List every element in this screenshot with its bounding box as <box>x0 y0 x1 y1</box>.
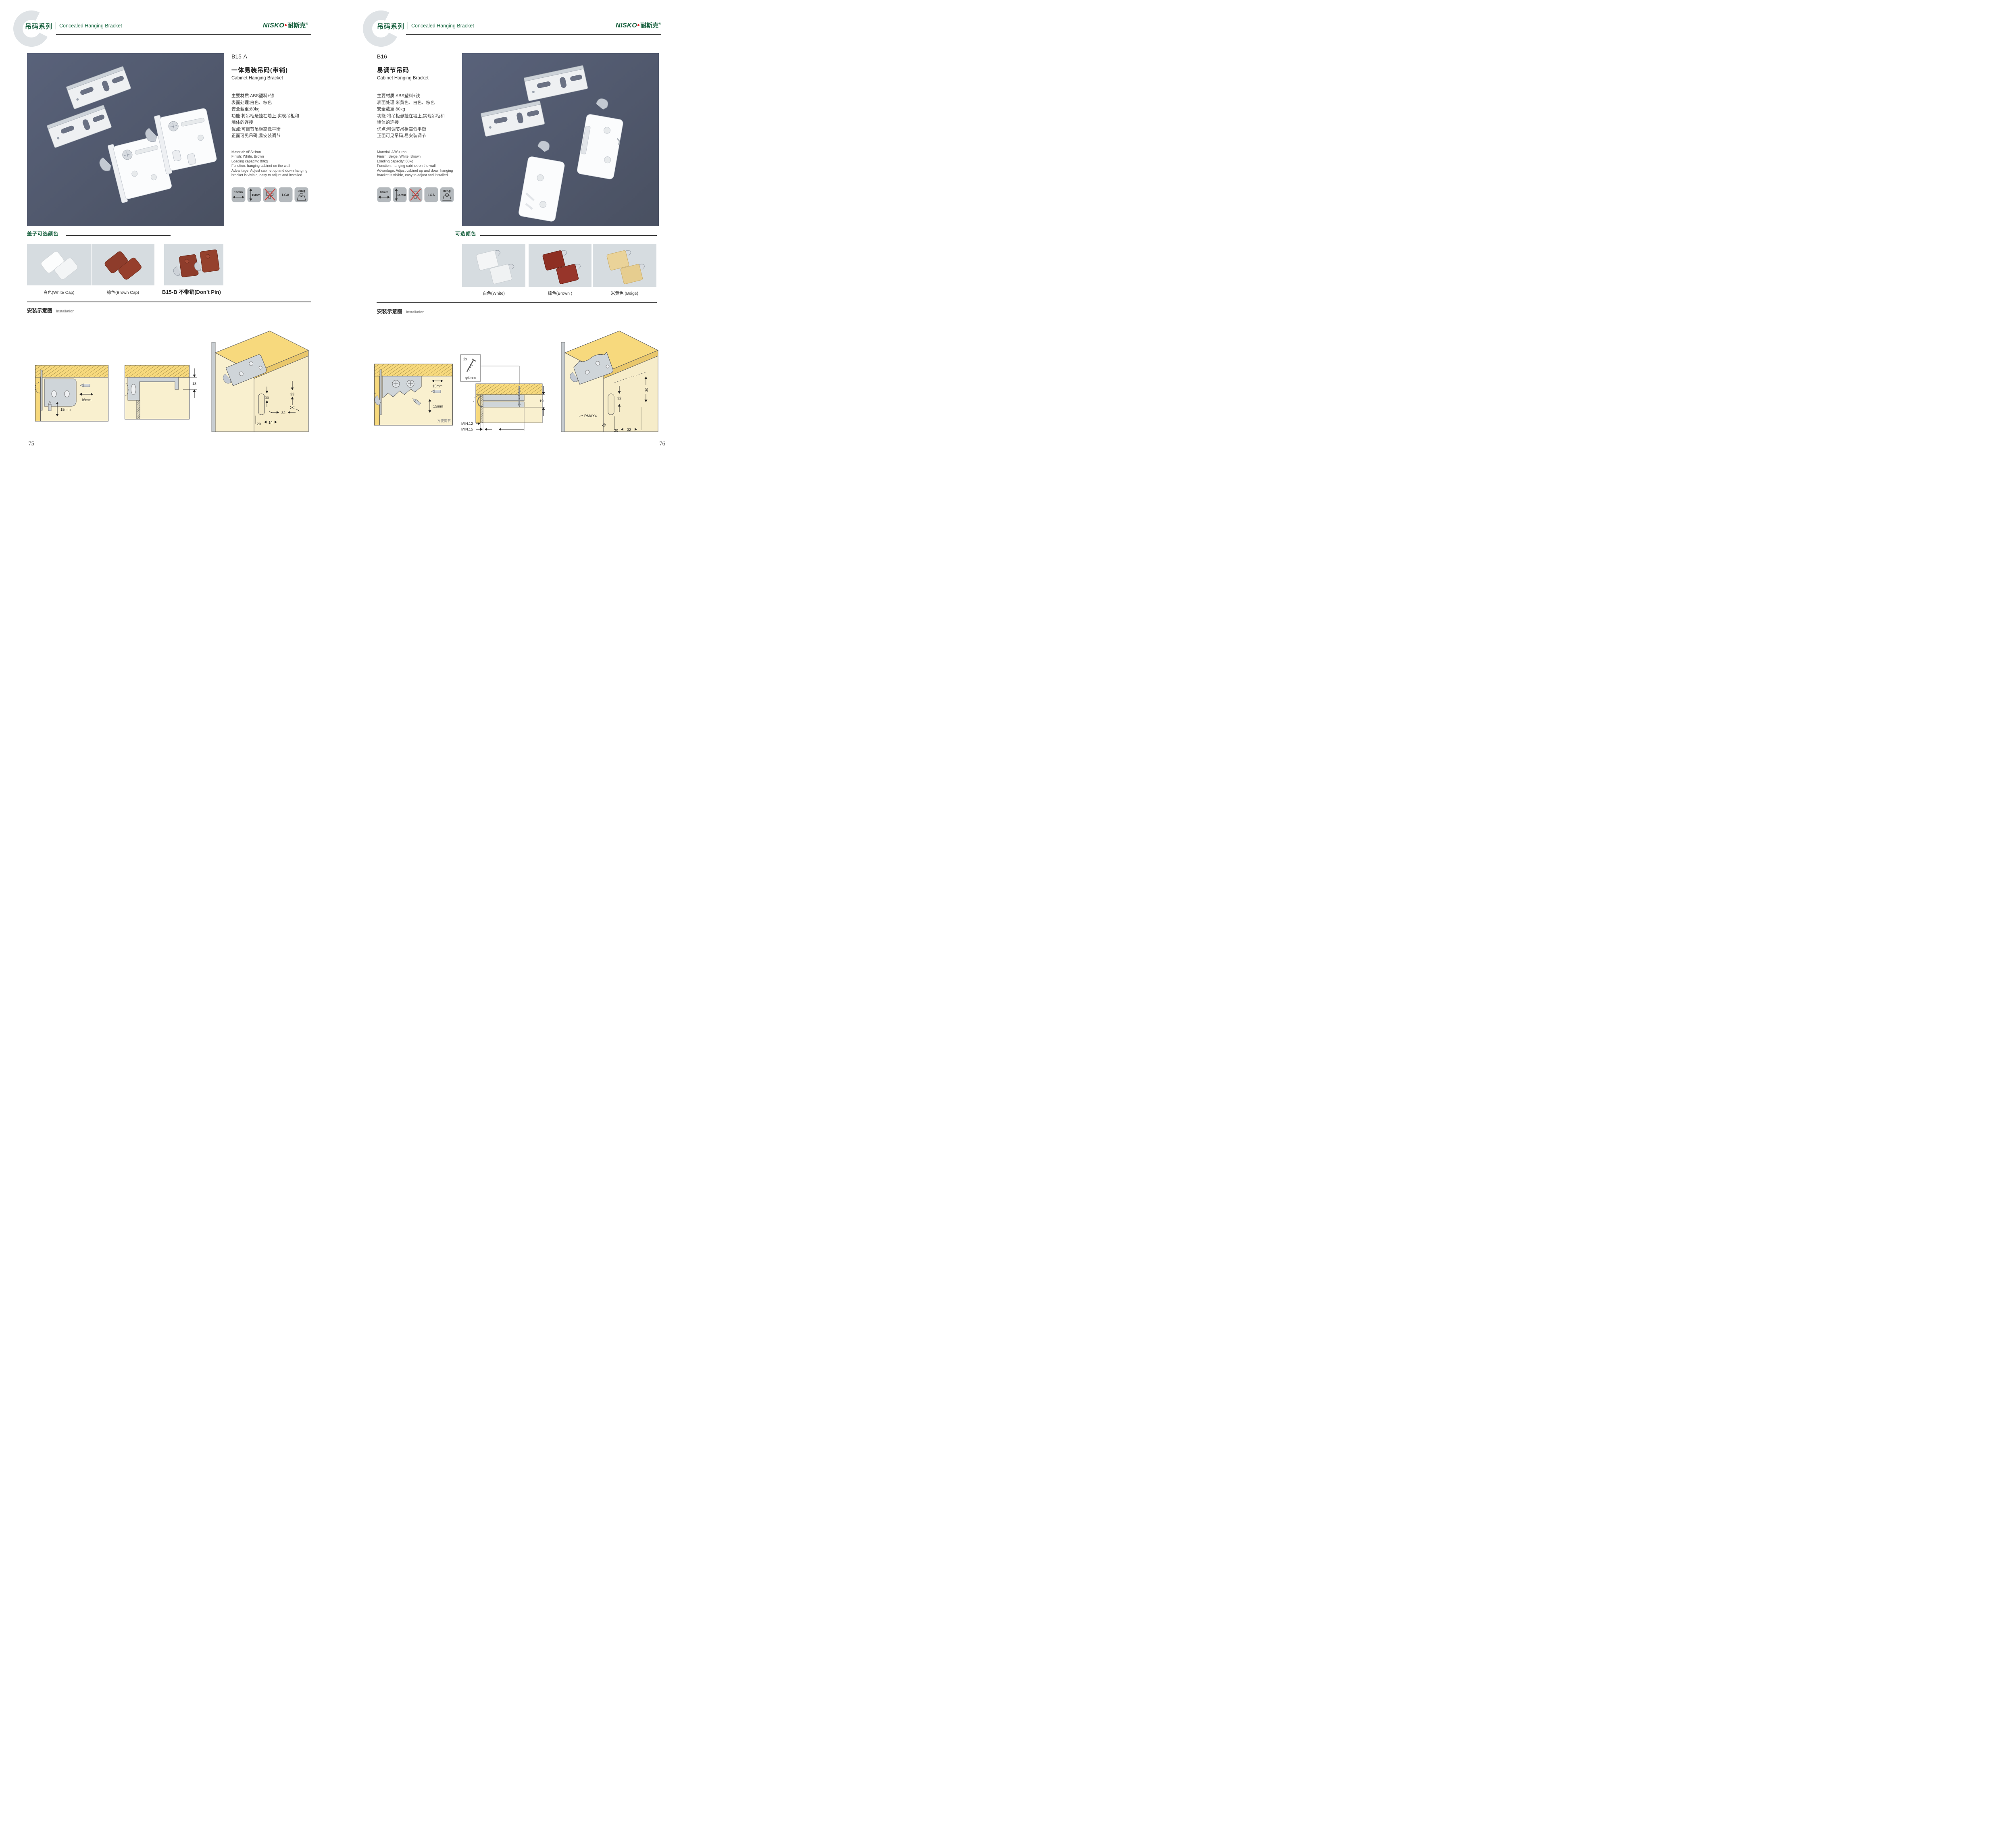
lga-certificate-icon: LGA <box>424 187 438 202</box>
swatch-caption: 白色(White) <box>462 290 525 296</box>
dim-label: 33 <box>290 392 294 396</box>
installation-diagram-2: 2x φ4mm 19 <box>460 354 546 432</box>
section-rule <box>27 302 311 302</box>
icon-label: LGA <box>282 193 289 197</box>
spec-line: Function: hanging cabinet on the wall <box>377 164 474 168</box>
color-swatch-brown-cap <box>92 244 154 285</box>
load-capacity-icon: 80Kg <box>440 187 454 202</box>
dim-label: 16mm <box>81 398 91 402</box>
dim-label: 20 <box>614 428 618 433</box>
dim-label: 19 <box>539 399 544 403</box>
color-options-heading: 盖子可选颜色 <box>27 230 58 237</box>
product-model: B15-A <box>231 53 328 60</box>
spec-line: Function: hanging cabinet on the wall <box>231 164 328 168</box>
dim-label: 32 <box>627 428 631 432</box>
dim-label: MIN.12 <box>461 422 473 426</box>
icon-label: 15mm <box>397 193 406 197</box>
icon-label: LGA <box>428 193 435 197</box>
brand-logo-latin: NISKO <box>263 22 284 29</box>
swatch-caption: 白色(White Cap) <box>27 289 91 295</box>
section-rule <box>377 302 657 303</box>
series-title-en: Concealed Hanging Bracket <box>59 23 122 29</box>
product-title-cn: 一体易装吊码(带销) <box>231 66 328 74</box>
spec-line: Finish: White, Brown <box>231 154 328 159</box>
page-number: 76 <box>659 441 665 447</box>
brand-logo-reg: ® <box>658 22 661 26</box>
installation-heading-en: Installation <box>406 310 424 314</box>
lga-certificate-icon: LGA <box>279 187 293 202</box>
product-title-cn: 易调节吊码 <box>377 66 474 74</box>
specs-cn: 主要材质:ABS塑料+铁 表面处理:白色、棕色 安全载重:80kg 功能:将吊柜… <box>231 93 328 139</box>
icon-label: 10mm <box>380 190 389 194</box>
series-title-en: Concealed Hanging Bracket <box>411 23 474 29</box>
spec-line: Advantage: Adjust cabinet up and down ha… <box>377 168 474 173</box>
catalog-spread: 吊码系列 Concealed Hanging Bracket NISKO耐斯克® <box>0 0 676 462</box>
color-swatch-b15b <box>164 244 223 285</box>
load-capacity-icon: 80Kg <box>294 187 308 202</box>
dim-label: RMAX4 <box>584 414 597 418</box>
spec-line: 主要材质:ABS塑料+铁 <box>377 93 474 100</box>
installation-heading-en: Installation <box>56 309 74 314</box>
width-arrow-icon: 16mm <box>231 187 246 202</box>
swatch-caption: 米黄色 (Beige) <box>593 290 656 296</box>
spec-line: 安全载重:80kg <box>377 106 474 113</box>
spec-line: 正面可见吊码,易安装调节 <box>231 133 328 139</box>
spec-line: Material: ABS+iron <box>377 150 474 155</box>
installation-diagram-1: 16mm 15mm <box>35 363 108 422</box>
specs-cn: 主要材质:ABS塑料+铁 表面处理:米黄色、白色、棕色 安全载重:80kg 功能… <box>377 93 474 139</box>
spec-line: 安全载重:80kg <box>231 106 328 113</box>
page-right: 吊码系列 Concealed Hanging Bracket NISKO耐斯克®… <box>338 0 676 462</box>
spec-line: 墙体的连接 <box>377 119 474 126</box>
icon-label: 15mm <box>252 193 260 197</box>
brand-logo-dot-icon <box>637 24 639 26</box>
dim-label: MIN.15 <box>461 427 473 431</box>
page-left: 吊码系列 Concealed Hanging Bracket NISKO耐斯克® <box>0 0 338 462</box>
dim-label: 20 <box>257 422 261 426</box>
screw-qty-label: 2x <box>463 357 467 361</box>
feature-icon-strip: 10mm 15mm LGA 80Kg <box>377 187 454 202</box>
spec-line: 墙体的连接 <box>231 119 328 126</box>
product-model: B16 <box>377 53 474 60</box>
product-info: B16 易调节吊码 Cabinet Hanging Bracket 主要材质:A… <box>377 53 474 178</box>
header-divider <box>408 22 408 29</box>
specs-en: Material: ABS+iron Finish: Beige, White,… <box>377 150 474 178</box>
screw-diameter-label: φ4mm <box>465 376 476 380</box>
feature-icon-strip: 16mm 15mm LGA 80Kg <box>231 187 308 202</box>
header: 吊码系列 Concealed Hanging Bracket <box>25 21 122 31</box>
width-arrow-icon: 10mm <box>377 187 391 202</box>
heading-line <box>480 235 657 236</box>
installation-heading: 安装示意图 Installation <box>27 306 74 314</box>
brand-logo: NISKO耐斯克® <box>616 21 661 29</box>
brand-logo-cn: 耐斯克 <box>640 22 658 29</box>
no-drill-icon <box>408 187 423 202</box>
header-rule <box>406 34 661 35</box>
dim-label: 15mm <box>60 408 71 412</box>
brand-logo-dot-icon <box>285 24 287 26</box>
spec-line: 优点:可调节吊柜高低平衡 <box>231 126 328 133</box>
dim-label: 14 <box>269 420 273 424</box>
header: 吊码系列 Concealed Hanging Bracket <box>377 21 474 31</box>
product-info: B15-A 一体易装吊码(带销) Cabinet Hanging Bracket… <box>231 53 328 178</box>
dim-label: 18 <box>192 382 196 386</box>
color-swatch-beige <box>593 244 656 287</box>
specs-en: Material: ABS+iron Finish: White, Brown … <box>231 150 328 178</box>
spec-line: bracket is visible, easy to adjust and i… <box>377 173 474 178</box>
dim-label: 15mm <box>432 384 442 388</box>
color-swatch-white <box>462 244 525 287</box>
installation-heading-cn: 安装示意图 <box>377 309 402 314</box>
spec-line: 优点:可调节吊柜高低平衡 <box>377 126 474 133</box>
product-photo-b16 <box>462 53 659 226</box>
spec-line: Loading capacity: 80kg <box>231 159 328 164</box>
swatch-caption-b15b: B15-B 不带销(Don’t Pin) <box>149 288 234 295</box>
product-photo-b15a <box>27 53 224 226</box>
spec-line: Advantage: Adjust cabinet up and down ha… <box>231 168 328 173</box>
installation-diagram-3: 30 32 RMAX4 19 20 32 <box>560 330 660 433</box>
height-arrow-icon: 15mm <box>247 187 261 202</box>
spec-line: Loading capacity: 80kg <box>377 159 474 164</box>
dim-label: 32 <box>281 411 285 415</box>
dim-label: 15mm <box>433 404 443 408</box>
series-title-cn: 吊码系列 <box>25 21 52 31</box>
spec-line: Material: ABS+iron <box>231 150 328 155</box>
heading-line <box>66 235 171 236</box>
installation-diagram-3: 33 30 32 20 14 <box>210 330 310 433</box>
icon-label: 16mm <box>234 190 243 194</box>
installation-heading: 安装示意图 Installation <box>377 307 424 315</box>
diagram-note: 方便调节 <box>437 419 451 423</box>
installation-heading-cn: 安装示意图 <box>27 308 52 314</box>
installation-diagram-2: 18 <box>125 363 199 422</box>
swatch-caption: 棕色(Brown ) <box>529 290 591 296</box>
brand-logo-cn: 耐斯克 <box>287 22 306 29</box>
no-drill-icon <box>263 187 277 202</box>
product-title-en: Cabinet Hanging Bracket <box>231 76 328 81</box>
dim-label: 30 <box>265 396 269 400</box>
spec-line: 正面可见吊码,易安装调节 <box>377 133 474 139</box>
brand-logo: NISKO耐斯克® <box>263 21 308 29</box>
series-title-cn: 吊码系列 <box>377 21 404 31</box>
dim-label: 30 <box>645 388 649 392</box>
product-title-en: Cabinet Hanging Bracket <box>377 76 474 81</box>
brand-logo-reg: ® <box>306 22 308 26</box>
icon-label: 80Kg <box>443 189 451 193</box>
spec-line: 功能:将吊柜悬挂在墙上,实现吊柜和 <box>377 113 474 120</box>
color-swatch-white-cap <box>27 244 91 285</box>
color-options-heading: 可选颜色 <box>455 230 476 237</box>
dim-label: 32 <box>617 396 621 400</box>
spec-line: Finish: Beige, White, Brown <box>377 154 474 159</box>
icon-label: 80Kg <box>298 189 305 193</box>
header-divider <box>56 22 56 29</box>
spec-line: 主要材质:ABS塑料+铁 <box>231 93 328 100</box>
installation-diagram-1: 15mm 15mm 方便调节 <box>374 361 453 426</box>
page-number: 75 <box>28 441 34 447</box>
spec-line: 功能:将吊柜悬挂在墙上,实现吊柜和 <box>231 113 328 120</box>
spec-line: bracket is visible, easy to adjust and i… <box>231 173 328 178</box>
spec-line: 表面处理:米黄色、白色、棕色 <box>377 100 474 106</box>
swatch-caption: 棕色(Brown Cap) <box>92 289 154 295</box>
spec-line: 表面处理:白色、棕色 <box>231 100 328 106</box>
brand-logo-latin: NISKO <box>616 22 637 29</box>
height-arrow-icon: 15mm <box>393 187 407 202</box>
color-swatch-brown <box>529 244 591 287</box>
header-rule <box>56 34 311 35</box>
